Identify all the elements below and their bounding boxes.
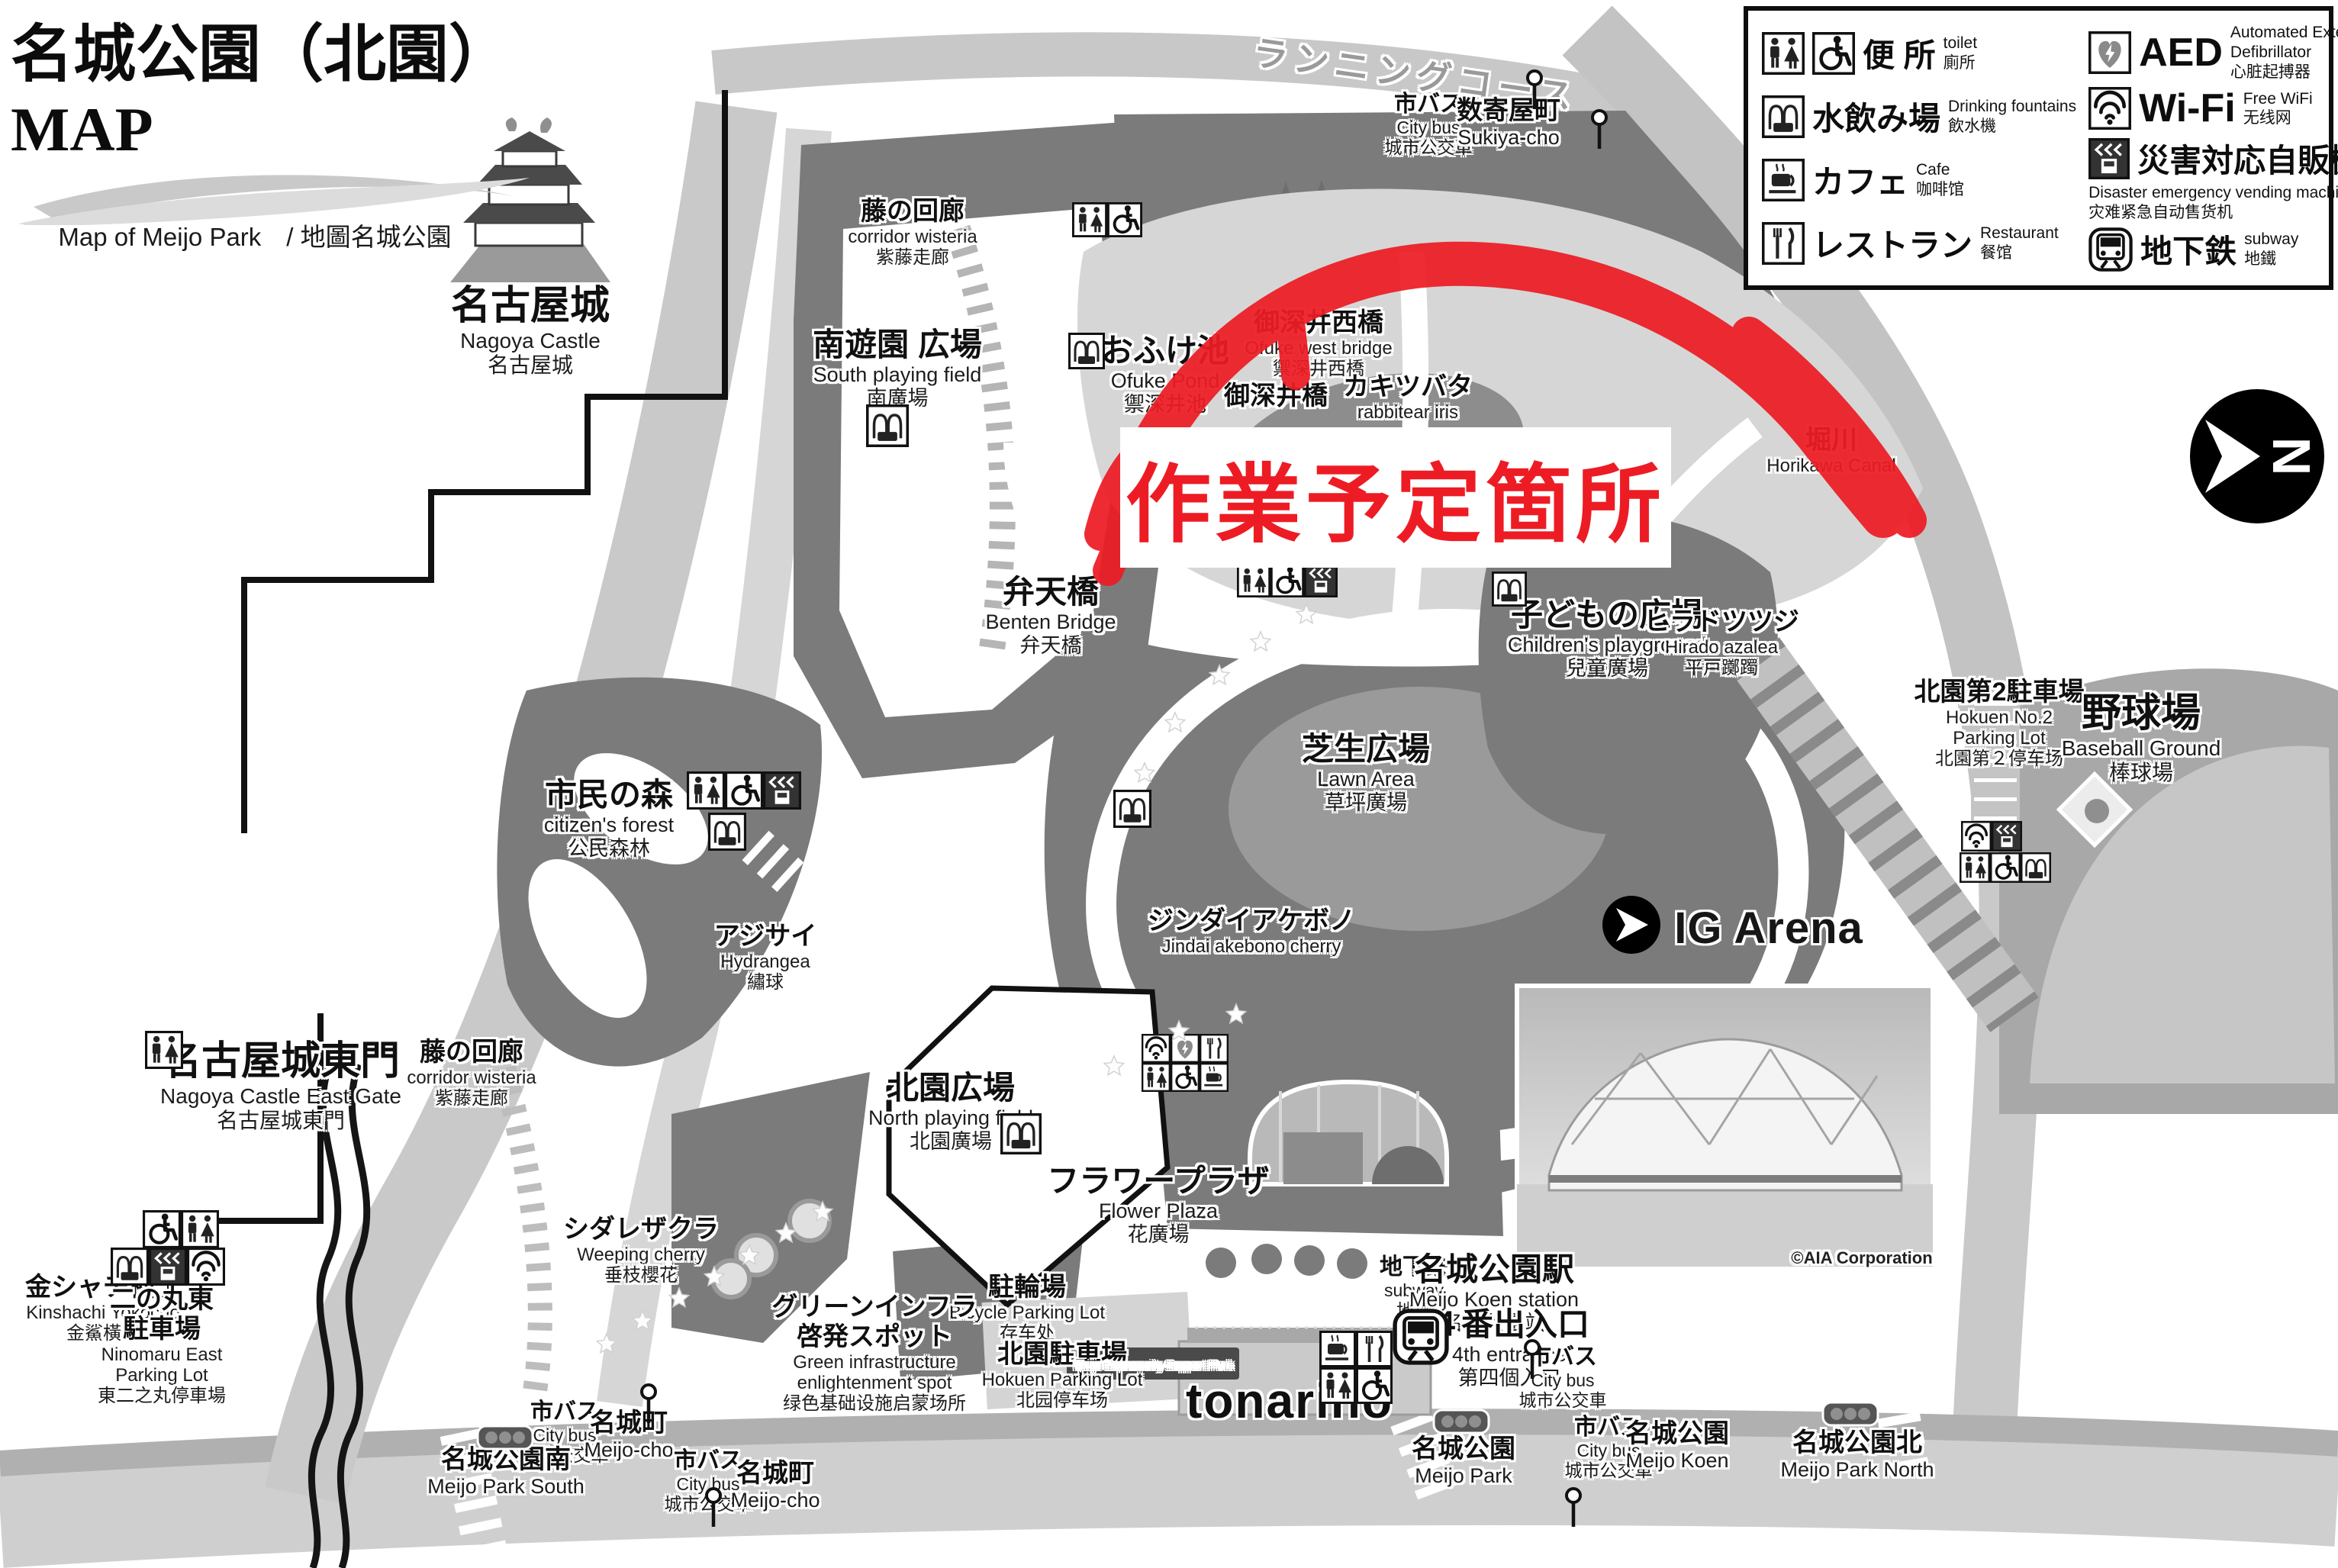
park-map-page: N 名城公園（北園）MAP Map of Meijo Park / 地圖名城公園…: [0, 0, 2338, 1568]
legend-item-fountain: 水飲み場 Drinking fountains飲水機: [1762, 93, 2076, 140]
legend-en: Restaurant: [1980, 224, 2059, 243]
legend-label: 地下鉄: [2140, 226, 2237, 272]
svg-text:N: N: [2262, 437, 2321, 476]
legend-en: Disaster emergency vending machine: [2088, 183, 2338, 203]
wifi-icon: [2088, 87, 2131, 130]
page-title: 名城公園（北園）MAP: [11, 3, 545, 166]
legend-left-column: 便 所 toilet廁所 水飲み場 Drinking fountains飲水機 …: [1748, 11, 2084, 285]
legend-label: カフェ: [1812, 156, 1908, 203]
restaurant-icon: [1762, 222, 1805, 265]
fountain-icon: [1762, 95, 1805, 138]
legend-label: AED: [2139, 30, 2223, 76]
legend-cn: 无线网: [2243, 108, 2313, 128]
legend-cn: 飲水機: [1948, 117, 2076, 137]
bush-icon: [713, 1261, 749, 1297]
legend-label: 水飲み場: [1812, 93, 1940, 140]
legend-label: 便 所: [1863, 30, 1936, 76]
legend-label: 災害対応自販機: [2137, 135, 2338, 182]
east-gate-boundary: [177, 1013, 320, 1221]
bush-icon: [790, 1201, 829, 1241]
legend-item-restaurant: レストラン Restaurant餐馆: [1762, 220, 2076, 266]
road-top: [713, 54, 1633, 105]
legend-cn: 地鐵: [2244, 250, 2298, 269]
page-subtitle: Map of Meijo Park / 地圖名城公園: [11, 217, 499, 253]
pitchers-mound: [2085, 799, 2109, 823]
compass-north-icon: N: [2190, 389, 2324, 523]
legend-en: Cafe: [1916, 160, 1964, 180]
legend-label: レストラン: [1812, 220, 1972, 266]
aed-icon: [2088, 31, 2131, 74]
ig-arena-photo: [1517, 986, 1933, 1267]
legend: 便 所 toilet廁所 水飲み場 Drinking fountains飲水機 …: [1744, 6, 2333, 290]
title-wave-decoration: [11, 159, 537, 225]
work-area-annotation: 作業予定箇所: [1120, 427, 1671, 568]
work-area-label: 作業予定箇所: [1126, 436, 1666, 559]
wheelchair-icon: [1812, 32, 1855, 75]
legend-en: subway: [2244, 230, 2298, 250]
legend-item-subway: 地下鉄 subway地鐵: [2088, 226, 2338, 272]
legend-cn: 餐馆: [1980, 243, 2059, 263]
legend-cn: 灾难紧急自动售货机: [2088, 203, 2338, 223]
ig-arena-logo-mark: [1602, 896, 1660, 954]
legend-right-column: AED Automated External Defibrillator心脏起搏…: [2084, 11, 2338, 285]
subway-icon: [2088, 227, 2133, 272]
legend-cn: 咖啡馆: [1916, 180, 1964, 200]
legend-en: Drinking fountains: [1948, 97, 2076, 117]
weeping-cherry-block: [671, 1072, 870, 1343]
legend-cn: 廁所: [1944, 53, 1977, 73]
legend-label: Wi-Fi: [2139, 85, 2236, 131]
toilet-icon: [1762, 32, 1805, 75]
flower-plaza-building: [1250, 1082, 1447, 1184]
legend-item-cafe: カフェ Cafe咖啡馆: [1762, 156, 2076, 203]
legend-en: Automated External Defibrillator: [2230, 23, 2338, 62]
cafe-icon: [1762, 159, 1805, 201]
legend-item-aed: AED Automated External Defibrillator心脏起搏…: [2088, 23, 2338, 82]
legend-en: toilet: [1944, 34, 1977, 53]
legend-en: Free WiFi: [2243, 89, 2313, 109]
disaster-vending-icon: [2088, 138, 2130, 179]
legend-cn: 心脏起搏器: [2230, 63, 2338, 82]
legend-item-toilet: 便 所 toilet廁所: [1762, 30, 2076, 76]
legend-item-vending: 災害対応自販機 Disaster emergency vending machi…: [2088, 135, 2338, 222]
title-block: 名城公園（北園）MAP Map of Meijo Park / 地圖名城公園: [11, 3, 545, 253]
legend-item-wifi: Wi-Fi Free WiFi无线网: [2088, 85, 2338, 131]
